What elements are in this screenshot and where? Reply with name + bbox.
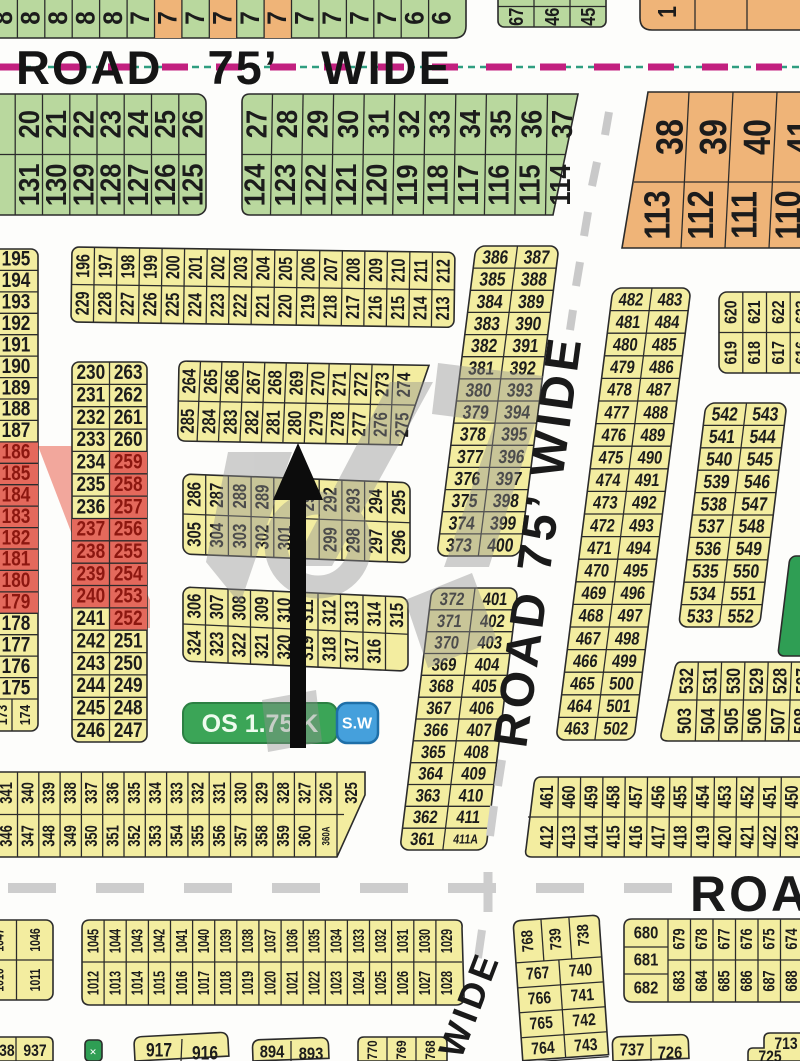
svg-text:212: 212 xyxy=(432,259,454,283)
svg-text:475: 475 xyxy=(597,447,624,468)
svg-text:313: 313 xyxy=(341,600,362,626)
svg-text:263: 263 xyxy=(114,362,143,385)
svg-text:675: 675 xyxy=(760,928,779,949)
svg-text:537: 537 xyxy=(697,515,726,537)
svg-text:532: 532 xyxy=(676,668,698,694)
svg-text:687: 687 xyxy=(760,970,779,991)
svg-text:352: 352 xyxy=(125,825,145,847)
svg-text:678: 678 xyxy=(692,928,711,949)
svg-text:1023: 1023 xyxy=(328,971,346,996)
svg-text:1013: 1013 xyxy=(106,971,124,996)
svg-text:179: 179 xyxy=(2,591,31,614)
svg-text:501: 501 xyxy=(605,696,632,717)
svg-text:674: 674 xyxy=(782,928,800,950)
svg-text:535: 535 xyxy=(691,560,720,582)
svg-text:209: 209 xyxy=(365,258,387,282)
svg-text:316: 316 xyxy=(364,638,385,664)
svg-text:688: 688 xyxy=(782,970,800,991)
svg-text:208: 208 xyxy=(342,258,364,282)
svg-text:329: 329 xyxy=(253,782,273,804)
svg-text:1032: 1032 xyxy=(372,929,390,954)
svg-text:268: 268 xyxy=(264,370,286,395)
svg-text:241: 241 xyxy=(76,608,105,631)
svg-text:1042: 1042 xyxy=(151,929,169,954)
svg-text:502: 502 xyxy=(602,718,629,739)
svg-text:418: 418 xyxy=(671,825,691,848)
svg-text:504: 504 xyxy=(697,708,719,734)
svg-text:272: 272 xyxy=(350,372,372,397)
svg-text:479: 479 xyxy=(609,357,636,378)
svg-text:770: 770 xyxy=(364,1040,380,1059)
svg-text:545: 545 xyxy=(746,448,775,470)
svg-text:245: 245 xyxy=(76,697,105,720)
svg-text:282: 282 xyxy=(241,410,263,435)
svg-text:549: 549 xyxy=(735,538,764,560)
svg-text:494: 494 xyxy=(625,538,653,559)
svg-text:213: 213 xyxy=(432,296,454,320)
svg-text:676: 676 xyxy=(737,928,756,949)
svg-text:490: 490 xyxy=(636,447,663,468)
svg-text:183: 183 xyxy=(2,505,31,528)
svg-text:120: 120 xyxy=(360,164,393,207)
svg-text:538: 538 xyxy=(700,493,729,515)
svg-text:1019: 1019 xyxy=(239,971,257,996)
svg-text:333: 333 xyxy=(167,782,187,804)
svg-text:738: 738 xyxy=(575,924,594,947)
svg-text:337: 337 xyxy=(82,782,102,804)
svg-text:465: 465 xyxy=(569,673,596,694)
svg-text:893: 893 xyxy=(299,1044,324,1061)
svg-text:491: 491 xyxy=(634,470,661,491)
svg-text:221: 221 xyxy=(252,294,274,318)
svg-text:686: 686 xyxy=(737,970,756,991)
svg-text:246: 246 xyxy=(76,719,105,742)
svg-text:26: 26 xyxy=(176,110,209,138)
svg-text:533: 533 xyxy=(686,605,715,627)
svg-text:226: 226 xyxy=(139,292,161,316)
svg-text:1036: 1036 xyxy=(283,929,301,954)
svg-text:551: 551 xyxy=(729,583,758,605)
svg-text:41: 41 xyxy=(780,119,800,155)
svg-text:492: 492 xyxy=(631,492,658,513)
svg-text:1046: 1046 xyxy=(26,928,43,951)
svg-text:116: 116 xyxy=(482,164,515,205)
svg-text:621: 621 xyxy=(745,300,765,323)
svg-text:461: 461 xyxy=(537,785,557,808)
svg-text:351: 351 xyxy=(104,825,124,847)
svg-text:507: 507 xyxy=(767,708,789,734)
svg-text:264: 264 xyxy=(179,368,201,394)
svg-text:196: 196 xyxy=(72,254,94,278)
svg-text:306: 306 xyxy=(184,593,205,619)
svg-text:339: 339 xyxy=(40,782,60,804)
svg-text:327: 327 xyxy=(295,782,315,804)
svg-text:894: 894 xyxy=(260,1042,285,1061)
svg-text:278: 278 xyxy=(327,411,349,436)
svg-text:1029: 1029 xyxy=(438,929,456,954)
svg-text:336: 336 xyxy=(104,782,124,804)
svg-text:484: 484 xyxy=(654,312,682,333)
svg-text:174: 174 xyxy=(17,704,33,725)
svg-text:547: 547 xyxy=(740,493,769,515)
svg-text:186: 186 xyxy=(2,441,31,464)
svg-text:618: 618 xyxy=(745,341,765,364)
svg-text:35: 35 xyxy=(484,110,517,138)
svg-text:679: 679 xyxy=(670,928,689,949)
svg-text:218: 218 xyxy=(319,295,341,319)
svg-text:682: 682 xyxy=(634,978,659,998)
svg-text:253: 253 xyxy=(114,585,143,608)
svg-text:387: 387 xyxy=(522,246,551,268)
svg-text:684: 684 xyxy=(692,970,711,992)
svg-text:260: 260 xyxy=(114,429,143,452)
svg-text:1010: 1010 xyxy=(0,968,7,991)
svg-text:340: 340 xyxy=(18,782,38,804)
svg-text:335: 335 xyxy=(125,782,145,804)
svg-text:204: 204 xyxy=(252,256,274,281)
svg-text:184: 184 xyxy=(2,484,31,507)
svg-text:280: 280 xyxy=(284,411,306,436)
svg-text:122: 122 xyxy=(299,164,332,207)
svg-text:119: 119 xyxy=(391,164,424,205)
svg-text:485: 485 xyxy=(651,334,678,355)
svg-text:242: 242 xyxy=(76,630,105,653)
svg-text:30: 30 xyxy=(331,110,364,138)
svg-text:457: 457 xyxy=(626,785,646,808)
svg-text:542: 542 xyxy=(711,403,740,425)
svg-text:219: 219 xyxy=(297,294,319,318)
svg-text:7: 7 xyxy=(263,11,292,25)
svg-text:243: 243 xyxy=(76,652,105,675)
svg-text:198: 198 xyxy=(117,255,139,279)
svg-text:217: 217 xyxy=(342,295,364,319)
svg-text:257: 257 xyxy=(114,496,143,519)
svg-text:1047: 1047 xyxy=(0,928,7,951)
svg-text:623: 623 xyxy=(792,300,800,323)
svg-text:415: 415 xyxy=(604,825,624,848)
svg-text:1041: 1041 xyxy=(173,929,191,954)
svg-text:384: 384 xyxy=(475,291,504,313)
svg-text:216: 216 xyxy=(364,295,386,319)
svg-text:211: 211 xyxy=(410,259,432,282)
svg-text:8: 8 xyxy=(44,11,73,25)
svg-text:175: 175 xyxy=(2,677,31,700)
svg-text:27: 27 xyxy=(240,110,273,138)
svg-text:458: 458 xyxy=(604,785,624,808)
svg-text:357: 357 xyxy=(231,825,251,847)
svg-text:452: 452 xyxy=(738,785,758,808)
svg-text:233: 233 xyxy=(76,429,105,452)
svg-text:487: 487 xyxy=(645,379,672,400)
svg-text:36: 36 xyxy=(515,110,548,138)
svg-text:422: 422 xyxy=(760,825,780,848)
svg-text:32: 32 xyxy=(393,110,426,138)
svg-text:1039: 1039 xyxy=(217,929,235,954)
svg-text:725: 725 xyxy=(758,1048,782,1061)
svg-text:8: 8 xyxy=(16,11,45,25)
svg-text:680: 680 xyxy=(634,923,659,943)
svg-text:743: 743 xyxy=(574,1036,599,1056)
svg-text:1045: 1045 xyxy=(84,929,102,954)
svg-text:550: 550 xyxy=(732,560,761,582)
svg-text:309: 309 xyxy=(251,596,272,622)
svg-text:1011: 1011 xyxy=(26,969,43,992)
svg-text:251: 251 xyxy=(114,630,143,653)
svg-text:261: 261 xyxy=(114,406,143,429)
svg-text:341: 341 xyxy=(0,782,17,804)
svg-text:7: 7 xyxy=(126,11,155,25)
svg-text:355: 355 xyxy=(189,825,209,847)
svg-text:S.W: S.W xyxy=(342,716,373,733)
svg-text:232: 232 xyxy=(76,406,105,429)
svg-text:34: 34 xyxy=(454,109,487,138)
svg-text:187: 187 xyxy=(2,420,31,443)
svg-text:324: 324 xyxy=(184,630,205,656)
svg-text:7: 7 xyxy=(373,11,402,25)
svg-text:178: 178 xyxy=(2,613,31,636)
svg-text:200: 200 xyxy=(162,255,184,279)
svg-text:240: 240 xyxy=(76,585,105,608)
svg-text:378: 378 xyxy=(459,423,488,445)
svg-text:467: 467 xyxy=(575,628,602,649)
svg-text:265: 265 xyxy=(200,369,222,394)
svg-text:498: 498 xyxy=(614,628,641,649)
svg-text:ROAD 75’ WIDE: ROAD 75’ WIDE xyxy=(16,41,452,94)
svg-text:125: 125 xyxy=(176,164,209,207)
svg-text:917: 917 xyxy=(146,1039,172,1061)
svg-text:412: 412 xyxy=(537,825,557,848)
svg-text:476: 476 xyxy=(600,425,627,446)
svg-text:414: 414 xyxy=(582,825,602,848)
svg-text:388: 388 xyxy=(520,268,549,290)
svg-text:207: 207 xyxy=(320,257,342,281)
svg-text:38: 38 xyxy=(649,119,691,155)
svg-text:453: 453 xyxy=(715,785,735,808)
svg-text:6: 6 xyxy=(400,11,429,25)
svg-text:536: 536 xyxy=(694,538,723,560)
svg-text:206: 206 xyxy=(297,257,319,281)
svg-text:360A: 360A xyxy=(320,826,333,845)
svg-text:390: 390 xyxy=(514,313,543,335)
svg-text:7: 7 xyxy=(181,11,210,25)
svg-text:255: 255 xyxy=(114,541,143,564)
svg-text:6: 6 xyxy=(428,11,457,25)
svg-text:386: 386 xyxy=(481,246,510,268)
svg-text:338: 338 xyxy=(61,782,81,804)
svg-text:541: 541 xyxy=(708,426,737,448)
svg-text:497: 497 xyxy=(616,605,643,626)
svg-text:528: 528 xyxy=(769,668,791,694)
svg-text:552: 552 xyxy=(726,605,755,627)
svg-text:191: 191 xyxy=(2,334,31,357)
svg-text:230: 230 xyxy=(76,362,105,385)
svg-text:1040: 1040 xyxy=(195,929,213,954)
svg-text:249: 249 xyxy=(114,675,143,698)
svg-text:267: 267 xyxy=(243,370,265,395)
svg-text:270: 270 xyxy=(307,371,329,396)
svg-text:1018: 1018 xyxy=(217,971,235,996)
svg-text:543: 543 xyxy=(751,403,780,425)
svg-text:317: 317 xyxy=(341,637,362,663)
svg-text:1033: 1033 xyxy=(350,929,368,954)
svg-text:360: 360 xyxy=(295,825,315,847)
svg-text:368: 368 xyxy=(428,676,455,697)
svg-text:247: 247 xyxy=(114,719,143,742)
svg-text:473: 473 xyxy=(592,492,619,513)
svg-text:531: 531 xyxy=(699,668,721,694)
svg-text:266: 266 xyxy=(221,369,243,394)
svg-text:362: 362 xyxy=(412,807,439,828)
svg-text:7: 7 xyxy=(345,11,374,25)
svg-text:740: 740 xyxy=(568,961,592,981)
svg-text:499: 499 xyxy=(611,651,638,672)
svg-text:765: 765 xyxy=(529,1014,554,1034)
svg-text:742: 742 xyxy=(572,1011,597,1031)
svg-text:45: 45 xyxy=(577,8,600,26)
svg-text:118: 118 xyxy=(421,164,454,205)
svg-text:110: 110 xyxy=(769,190,800,239)
svg-text:328: 328 xyxy=(274,782,294,804)
svg-text:224: 224 xyxy=(184,292,206,317)
svg-text:222: 222 xyxy=(229,294,251,318)
svg-text:346: 346 xyxy=(0,825,17,847)
svg-text:244: 244 xyxy=(76,675,105,698)
svg-text:225: 225 xyxy=(162,293,184,317)
svg-text:46: 46 xyxy=(541,8,564,26)
svg-text:366: 366 xyxy=(423,720,450,741)
svg-text:1025: 1025 xyxy=(372,971,390,996)
svg-text:314: 314 xyxy=(364,601,385,627)
svg-text:1035: 1035 xyxy=(305,929,323,954)
svg-text:189: 189 xyxy=(2,377,31,400)
svg-text:33: 33 xyxy=(423,110,456,138)
svg-text:215: 215 xyxy=(387,296,409,320)
svg-text:1: 1 xyxy=(653,6,683,18)
svg-text:173: 173 xyxy=(0,704,10,725)
svg-text:321: 321 xyxy=(251,633,272,659)
svg-text:367: 367 xyxy=(425,698,452,719)
svg-text:326: 326 xyxy=(317,782,337,804)
svg-text:220: 220 xyxy=(274,294,296,318)
svg-text:455: 455 xyxy=(671,785,691,808)
svg-text:67: 67 xyxy=(505,8,528,26)
svg-text:285: 285 xyxy=(177,409,199,434)
svg-text:334: 334 xyxy=(146,782,166,804)
svg-text:279: 279 xyxy=(306,411,328,436)
svg-text:483: 483 xyxy=(656,289,683,310)
svg-text:182: 182 xyxy=(2,527,31,550)
svg-text:496: 496 xyxy=(619,583,646,604)
svg-text:540: 540 xyxy=(705,448,734,470)
svg-text:121: 121 xyxy=(329,164,362,207)
svg-text:307: 307 xyxy=(206,594,227,620)
svg-text:1037: 1037 xyxy=(261,929,279,953)
svg-text:383: 383 xyxy=(473,313,502,335)
svg-text:417: 417 xyxy=(648,825,668,848)
svg-text:113: 113 xyxy=(638,190,678,239)
svg-text:1012: 1012 xyxy=(84,971,102,996)
svg-text:7: 7 xyxy=(236,11,265,25)
svg-text:7: 7 xyxy=(153,11,182,25)
svg-text:450: 450 xyxy=(782,785,800,808)
svg-text:356: 356 xyxy=(210,825,230,847)
svg-text:477: 477 xyxy=(603,402,630,423)
svg-text:193: 193 xyxy=(2,291,31,314)
svg-text:1020: 1020 xyxy=(261,971,279,996)
svg-text:350: 350 xyxy=(82,825,102,847)
svg-text:391: 391 xyxy=(511,335,540,357)
svg-text:239: 239 xyxy=(76,563,105,586)
svg-text:413: 413 xyxy=(559,825,579,848)
svg-text:1014: 1014 xyxy=(129,971,147,996)
svg-text:486: 486 xyxy=(648,357,675,378)
svg-text:181: 181 xyxy=(2,548,31,571)
svg-text:188: 188 xyxy=(2,398,31,421)
svg-text:421: 421 xyxy=(738,825,758,848)
svg-text:256: 256 xyxy=(114,518,143,541)
svg-text:176: 176 xyxy=(2,655,31,678)
svg-text:194: 194 xyxy=(2,270,31,293)
svg-text:37: 37 xyxy=(545,110,578,138)
svg-text:767: 767 xyxy=(526,964,550,984)
svg-text:459: 459 xyxy=(582,785,602,808)
svg-text:228: 228 xyxy=(94,292,116,316)
svg-text:456: 456 xyxy=(648,785,668,808)
svg-text:364: 364 xyxy=(417,763,445,784)
svg-text:469: 469 xyxy=(580,583,607,604)
svg-text:227: 227 xyxy=(117,292,139,316)
svg-text:1021: 1021 xyxy=(283,971,301,996)
svg-text:464: 464 xyxy=(566,696,594,717)
svg-text:210: 210 xyxy=(387,258,409,282)
svg-text:468: 468 xyxy=(577,605,604,626)
svg-text:382: 382 xyxy=(470,335,499,357)
svg-text:111: 111 xyxy=(725,191,765,239)
svg-text:231: 231 xyxy=(76,384,105,407)
svg-text:482: 482 xyxy=(617,289,644,310)
svg-text:423: 423 xyxy=(782,825,800,848)
svg-text:622: 622 xyxy=(768,300,788,323)
svg-text:115: 115 xyxy=(513,164,546,205)
svg-text:548: 548 xyxy=(737,515,766,537)
svg-text:683: 683 xyxy=(670,970,689,991)
svg-text:322: 322 xyxy=(229,632,250,658)
svg-text:1017: 1017 xyxy=(195,971,213,995)
svg-text:529: 529 xyxy=(746,668,768,694)
svg-text:500: 500 xyxy=(608,673,635,694)
svg-text:361: 361 xyxy=(409,829,436,850)
svg-text:112: 112 xyxy=(682,190,722,239)
svg-text:454: 454 xyxy=(693,785,713,808)
svg-text:223: 223 xyxy=(207,293,229,317)
svg-text:286: 286 xyxy=(184,482,205,508)
svg-text:389: 389 xyxy=(517,291,546,313)
svg-text:8: 8 xyxy=(99,11,128,25)
svg-text:466: 466 xyxy=(572,651,599,672)
svg-text:283: 283 xyxy=(220,409,242,434)
svg-text:363: 363 xyxy=(414,785,441,806)
svg-text:1024: 1024 xyxy=(350,971,368,996)
svg-text:117: 117 xyxy=(452,164,485,205)
svg-text:258: 258 xyxy=(114,473,143,496)
svg-text:331: 331 xyxy=(210,782,230,804)
svg-text:195: 195 xyxy=(2,248,31,271)
svg-text:315: 315 xyxy=(386,602,407,628)
svg-text:506: 506 xyxy=(744,708,766,734)
svg-text:199: 199 xyxy=(140,255,162,279)
svg-text:123: 123 xyxy=(268,164,301,207)
svg-text:420: 420 xyxy=(715,825,735,848)
